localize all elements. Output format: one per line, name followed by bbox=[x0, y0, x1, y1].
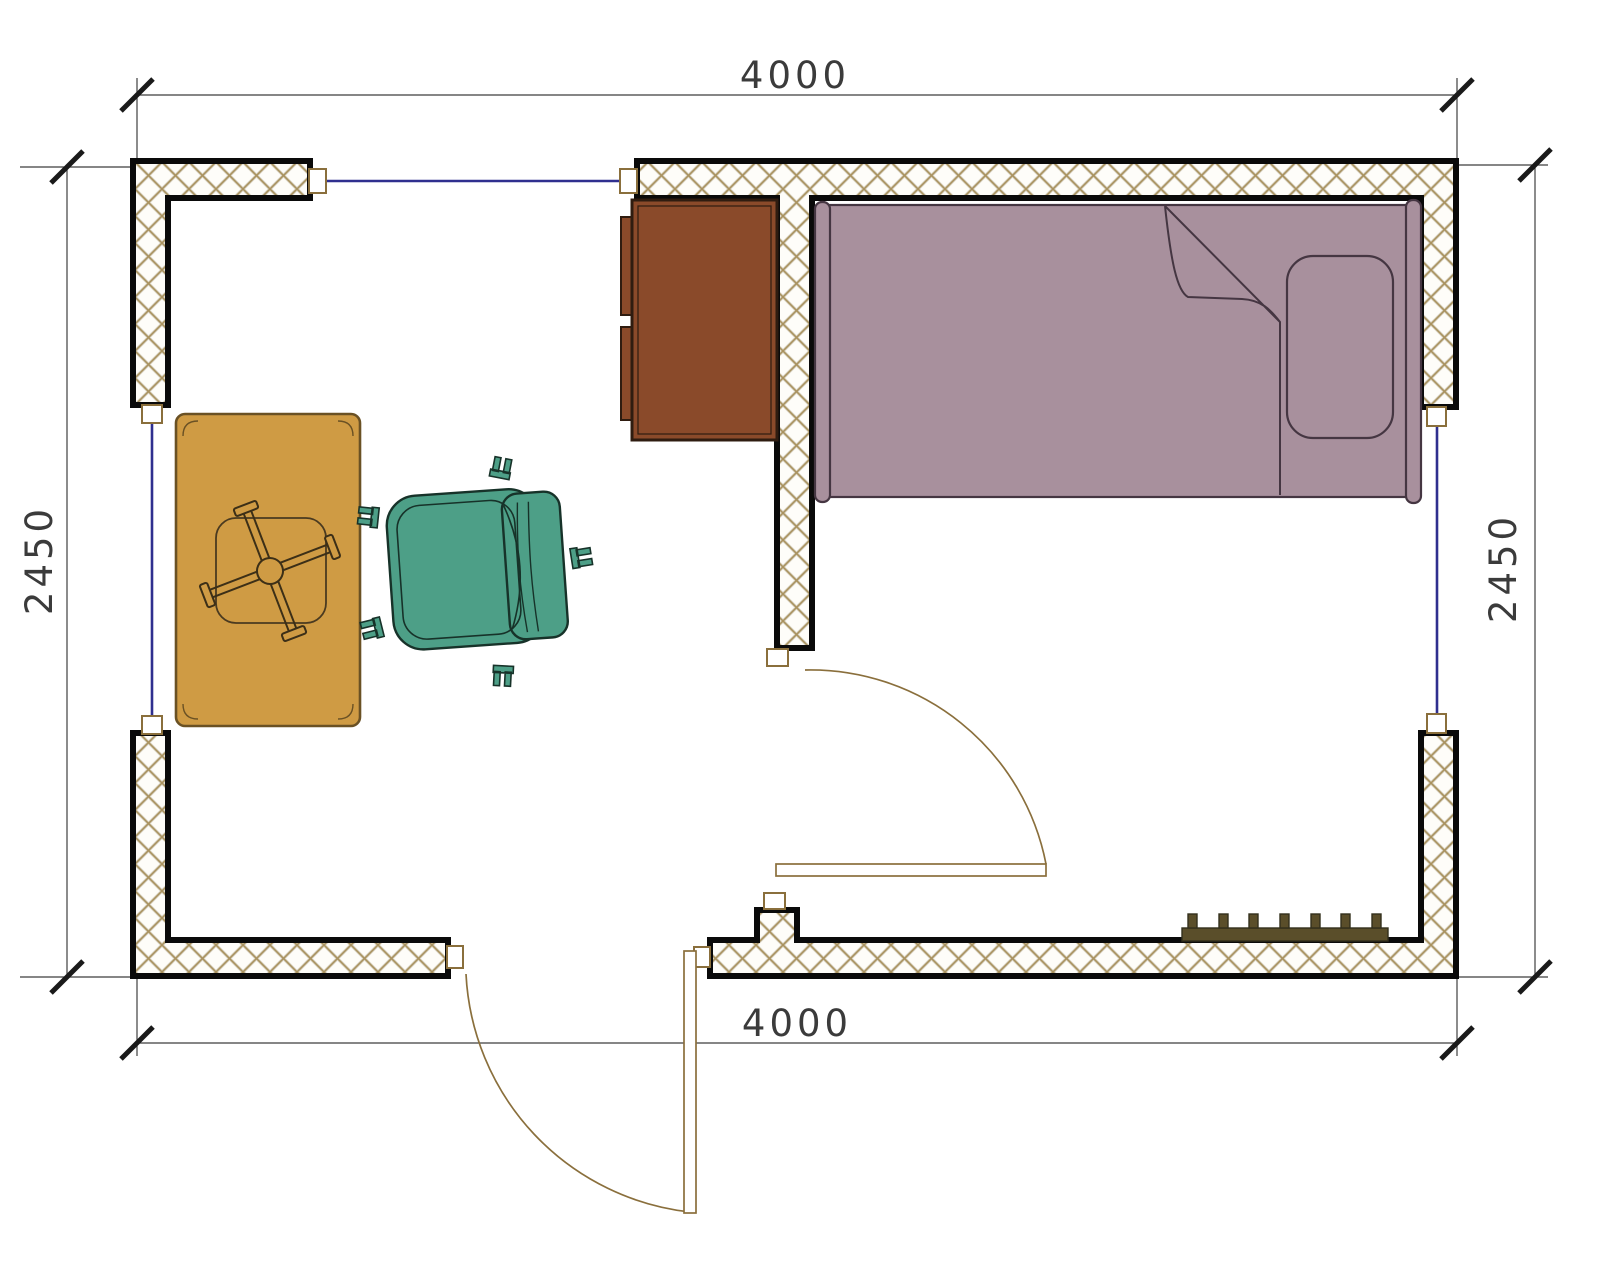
entry-door bbox=[466, 951, 696, 1213]
exterior-wall-top-left bbox=[133, 161, 310, 405]
radiator-fin bbox=[1341, 914, 1350, 928]
chair-caster bbox=[360, 617, 384, 641]
radiator-fin bbox=[1280, 914, 1289, 928]
interior-door bbox=[776, 670, 1046, 876]
entry-door-swing-arc bbox=[466, 974, 690, 1212]
window-jamb bbox=[1427, 407, 1446, 426]
door-jamb bbox=[767, 649, 788, 666]
radiator-fin bbox=[1249, 914, 1258, 928]
single-bed bbox=[815, 200, 1421, 503]
dimension-label-left: 2450 bbox=[18, 505, 61, 615]
chair-caster bbox=[492, 665, 513, 686]
dimension-top: 4000 bbox=[121, 54, 1473, 111]
bed-rail-left bbox=[815, 202, 830, 502]
radiator-fin bbox=[1188, 914, 1197, 928]
radiator-fin bbox=[1219, 914, 1228, 928]
window-jamb bbox=[620, 169, 637, 193]
door-jamb bbox=[764, 893, 785, 909]
dimension-left: 2450 bbox=[18, 151, 83, 993]
exterior-wall-bottom-left bbox=[133, 733, 448, 976]
window-jamb bbox=[142, 716, 162, 734]
floor-plan-page: 4000 4000 2450 2450 bbox=[0, 0, 1600, 1280]
bed-rail-right bbox=[1406, 200, 1421, 503]
chair-caster bbox=[489, 456, 512, 479]
interior-door-leaf bbox=[776, 864, 1046, 876]
dimension-right: 2450 bbox=[1482, 149, 1551, 993]
dimension-label-top: 4000 bbox=[740, 54, 850, 97]
entry-door-leaf bbox=[684, 951, 696, 1213]
wardrobe-cabinet bbox=[621, 200, 777, 440]
radiator bbox=[1182, 914, 1388, 941]
dimension-bottom: 4000 bbox=[121, 1002, 1473, 1059]
floor-plan-canvas: 4000 4000 2450 2450 bbox=[0, 0, 1600, 1280]
dimension-label-right: 2450 bbox=[1482, 513, 1525, 623]
chair-backrest bbox=[501, 491, 569, 641]
table bbox=[176, 414, 362, 726]
radiator-fins bbox=[1188, 914, 1381, 928]
interior-door-swing-arc bbox=[805, 670, 1046, 864]
window-jamb bbox=[142, 405, 162, 423]
wardrobe-body bbox=[632, 200, 777, 440]
radiator-fin bbox=[1372, 914, 1381, 928]
bed-pillow bbox=[1287, 256, 1393, 438]
office-chair bbox=[349, 450, 601, 697]
radiator-body bbox=[1182, 928, 1388, 941]
door-jamb bbox=[447, 946, 463, 968]
window-jamb bbox=[309, 169, 326, 193]
window-jamb bbox=[1427, 714, 1446, 733]
radiator-fin bbox=[1311, 914, 1320, 928]
dimension-label-bottom: 4000 bbox=[742, 1002, 852, 1045]
chair-caster bbox=[570, 546, 593, 569]
